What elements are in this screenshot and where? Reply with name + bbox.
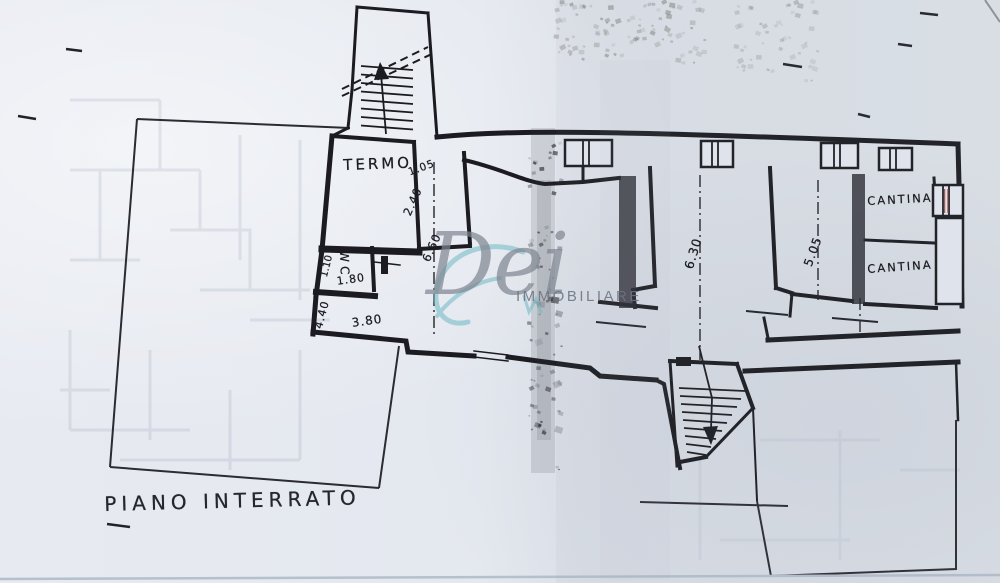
floorplan-drawing	[0, 0, 1000, 583]
stair-cut-line	[342, 47, 434, 96]
upper-staircase	[342, 47, 434, 134]
stair-arrow-icon	[374, 62, 389, 80]
scanned-floorplan-page: TERMOWCCANTINACANTINA1.052.406.601.101.8…	[0, 0, 1000, 583]
stair-direction-line	[381, 74, 386, 134]
title-underline	[107, 524, 130, 527]
scan-tint	[556, 0, 1000, 583]
